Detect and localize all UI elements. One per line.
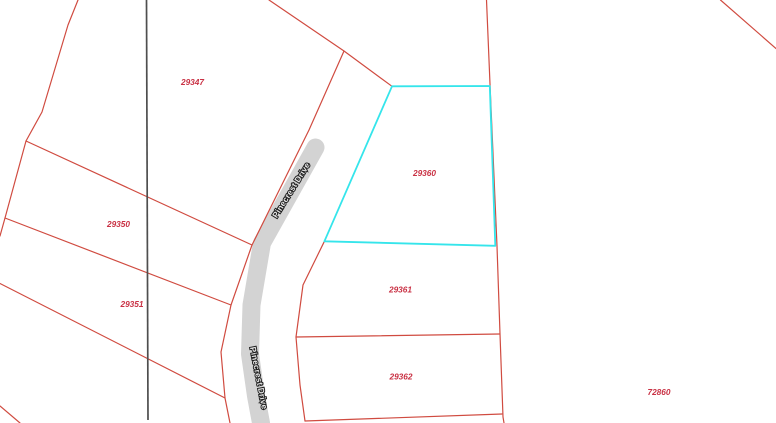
svg-text:29362: 29362	[388, 372, 412, 382]
svg-text:29361: 29361	[388, 285, 412, 295]
svg-text:29351: 29351	[119, 299, 143, 309]
svg-text:29360: 29360	[412, 168, 436, 178]
svg-text:29347: 29347	[180, 77, 204, 87]
svg-text:72860: 72860	[647, 387, 670, 397]
svg-text:29350: 29350	[106, 219, 130, 229]
